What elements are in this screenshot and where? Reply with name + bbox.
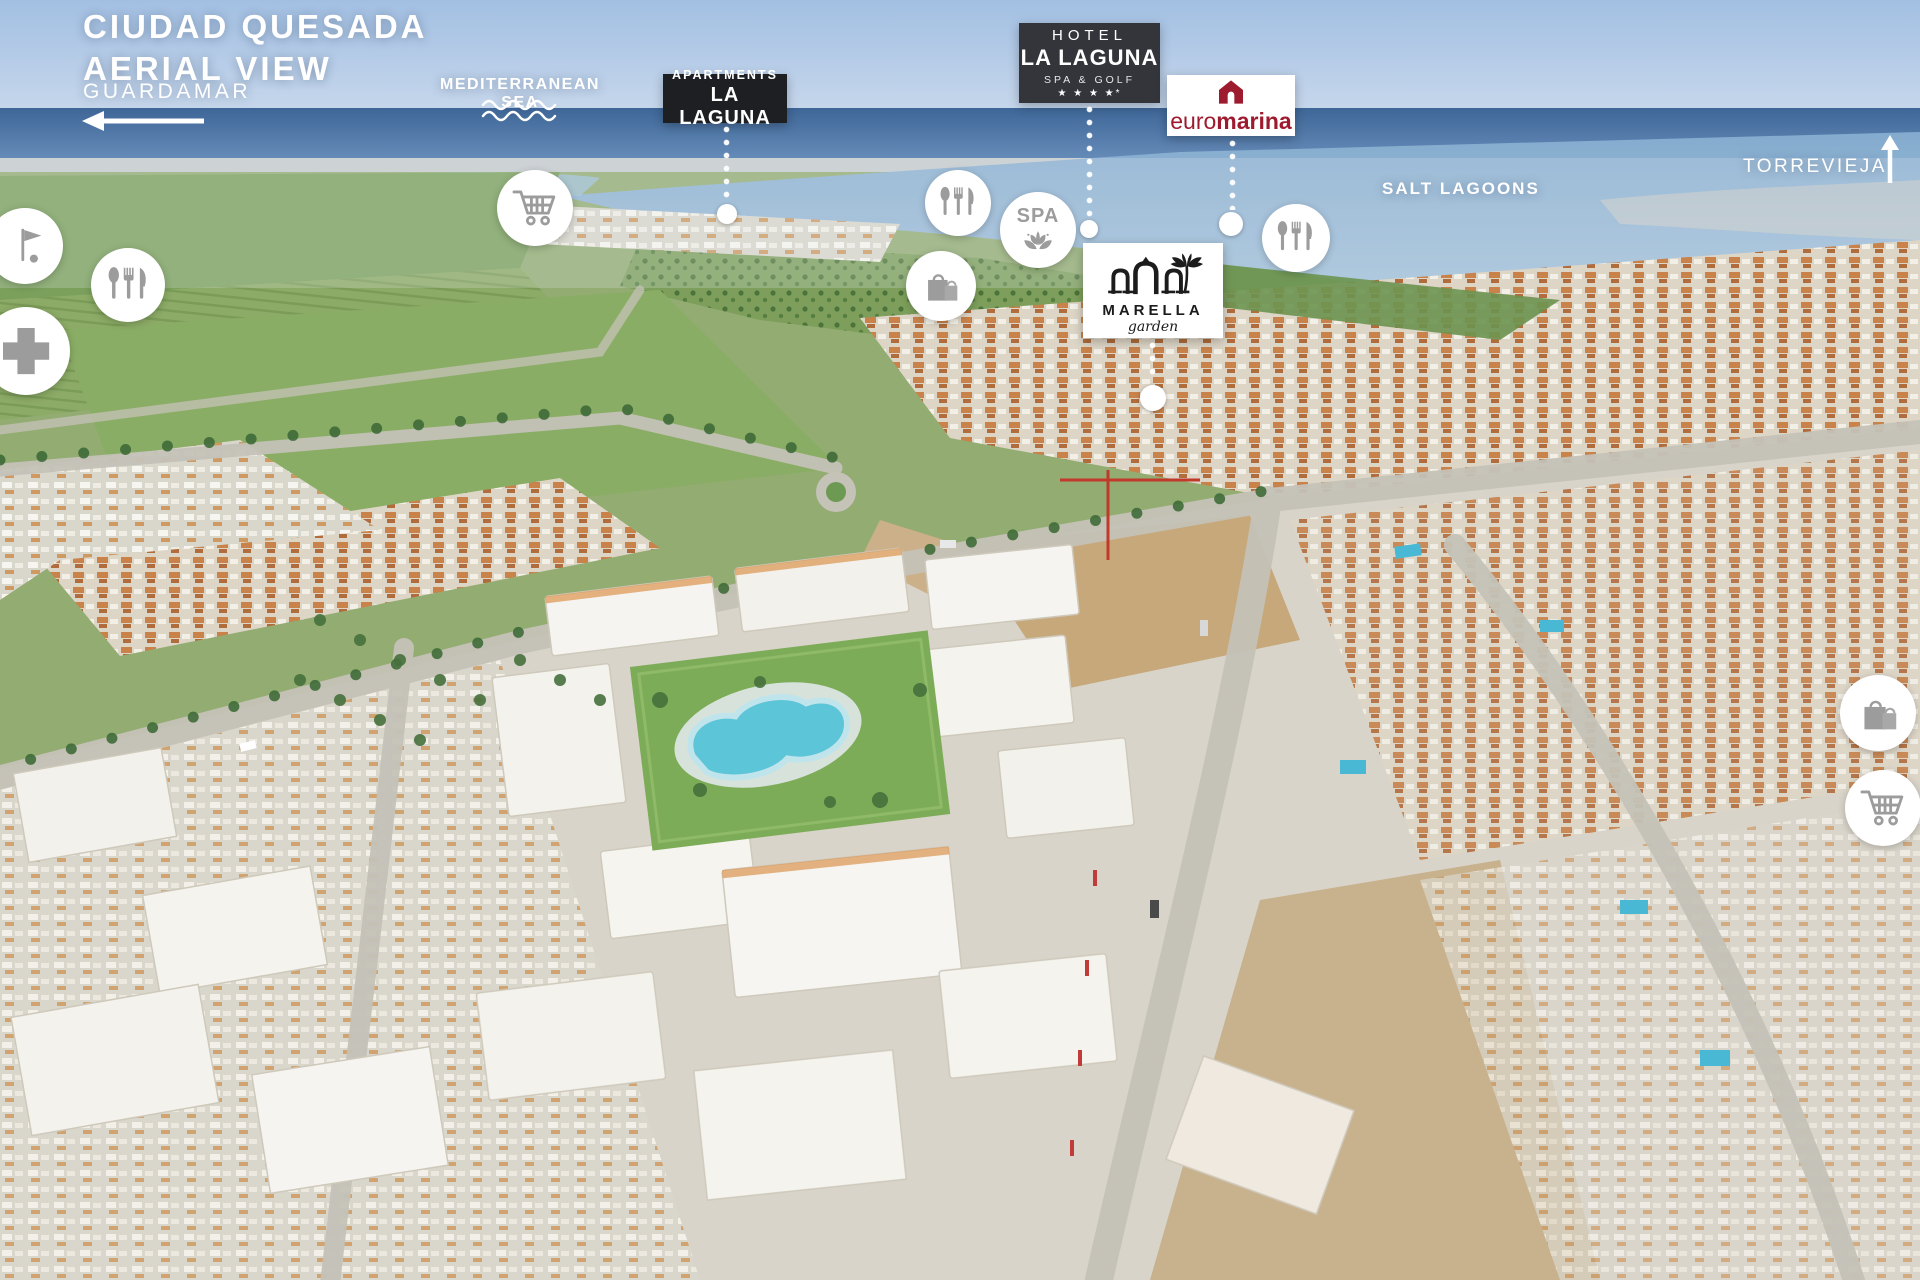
shopping-bags-icon bbox=[906, 251, 976, 321]
house-arch-icon bbox=[1214, 79, 1248, 109]
page-title: CIUDAD QUESADA AERIAL VIEW bbox=[83, 6, 428, 90]
hotel-marker-dot bbox=[1080, 220, 1098, 238]
direction-guardamar-label: GUARDAMAR bbox=[83, 80, 251, 104]
direction-torrevieja-label: TORREVIEJA bbox=[1743, 156, 1887, 178]
marella-badge-name: MARELLA bbox=[1102, 302, 1203, 319]
spa-label: SPA bbox=[1017, 206, 1060, 226]
shopping-cart-icon bbox=[1845, 770, 1920, 846]
marella-garden-badge: MARELLA garden bbox=[1083, 243, 1223, 338]
apartments-badge-top: APARTMENTS bbox=[663, 68, 787, 82]
arrow-up-icon bbox=[1878, 133, 1902, 185]
shopping-bags-icon bbox=[1840, 675, 1916, 751]
golf-icon bbox=[0, 208, 63, 284]
hotel-badge-name: LA LAGUNA bbox=[1019, 45, 1160, 71]
waves-icon bbox=[481, 98, 559, 124]
shopping-cart-icon bbox=[497, 170, 573, 246]
marella-badge-subtitle: garden bbox=[1128, 319, 1178, 335]
euromarina-badge: euromarina bbox=[1167, 75, 1295, 136]
marella-marker-dot bbox=[1140, 385, 1166, 411]
restaurant-icon bbox=[925, 170, 991, 236]
apartments-badge-name: LA LAGUNA bbox=[663, 84, 787, 130]
apartments-marker-dot bbox=[717, 204, 737, 224]
hotel-star-rating: ★ ★ ★ ★* bbox=[1019, 88, 1160, 99]
restaurant-icon bbox=[1262, 204, 1330, 272]
euromarina-marker-dot bbox=[1219, 212, 1243, 236]
arches-palm-icon bbox=[1101, 249, 1205, 301]
apartments-la-laguna-badge: APARTMENTS LA LAGUNA bbox=[663, 74, 787, 123]
salt-lagoons-label: SALT LAGOONS bbox=[1382, 179, 1540, 199]
hotel-la-laguna-badge: HOTEL LA LAGUNA SPA & GOLF ★ ★ ★ ★* bbox=[1019, 23, 1160, 103]
hotel-badge-top: HOTEL bbox=[1019, 27, 1160, 44]
apartments-leader-line bbox=[723, 126, 730, 206]
arrow-left-icon bbox=[80, 108, 208, 134]
spa-lotus-icon: SPA bbox=[1000, 192, 1076, 268]
euromarina-leader-line bbox=[1229, 140, 1236, 210]
hotel-leader-line bbox=[1086, 106, 1093, 218]
medical-cross-icon bbox=[0, 307, 70, 395]
hotel-badge-subtitle: SPA & GOLF bbox=[1019, 74, 1160, 86]
title-line-1: CIUDAD QUESADA bbox=[83, 6, 428, 48]
restaurant-icon bbox=[91, 248, 165, 322]
aerial-view-page: CIUDAD QUESADA AERIAL VIEW GUARDAMAR MED… bbox=[0, 0, 1920, 1280]
euromarina-logo-text: euromarina bbox=[1170, 110, 1291, 133]
marella-leader-line bbox=[1149, 342, 1156, 380]
